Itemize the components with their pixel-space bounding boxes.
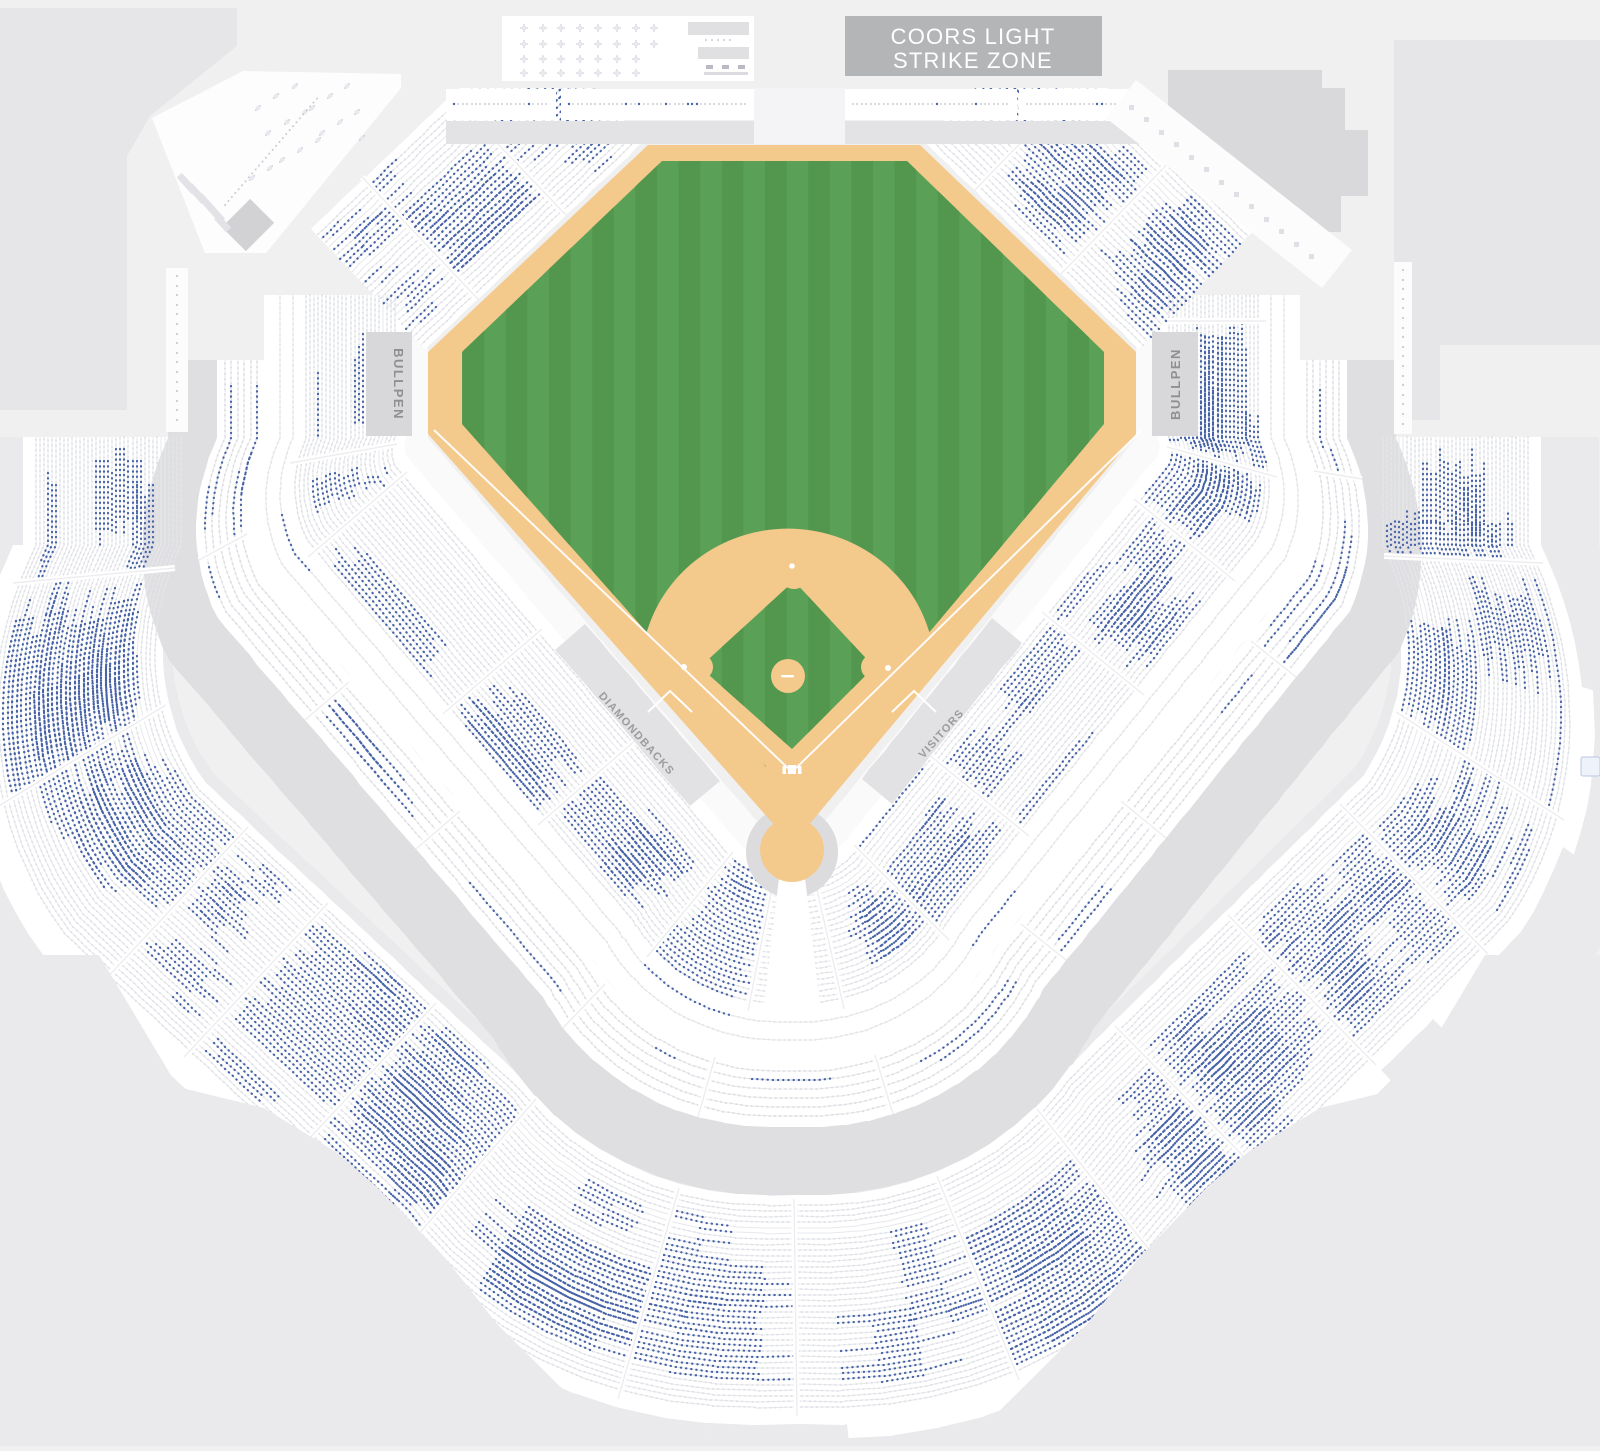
svg-text:BULLPEN: BULLPEN — [1168, 348, 1183, 420]
svg-text:BULLPEN: BULLPEN — [391, 348, 406, 420]
svg-text:COORS LIGHT: COORS LIGHT — [891, 24, 1056, 49]
svg-text:STRIKE ZONE: STRIKE ZONE — [893, 48, 1053, 73]
